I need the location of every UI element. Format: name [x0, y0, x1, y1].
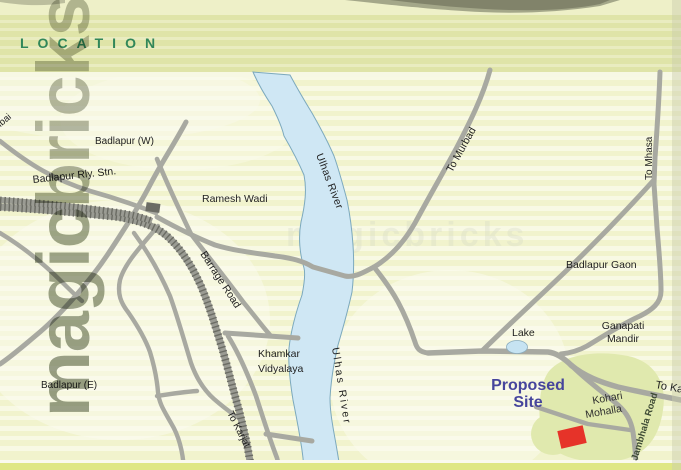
svg-text:Badlapur Gaon: Badlapur Gaon — [566, 259, 637, 271]
svg-text:Lake: Lake — [512, 327, 535, 339]
svg-text:Vidyalaya: Vidyalaya — [258, 363, 303, 375]
svg-text:Site: Site — [513, 394, 542, 411]
svg-text:To Mhasa: To Mhasa — [644, 136, 655, 180]
svg-text:Khamkar: Khamkar — [258, 348, 301, 360]
svg-text:Mandir: Mandir — [607, 333, 640, 345]
svg-text:Ganapati: Ganapati — [602, 320, 645, 332]
svg-text:Ramesh Wadi: Ramesh Wadi — [202, 193, 268, 205]
svg-text:Proposed: Proposed — [491, 377, 565, 394]
svg-text:magicbricks: magicbricks — [22, 0, 105, 417]
